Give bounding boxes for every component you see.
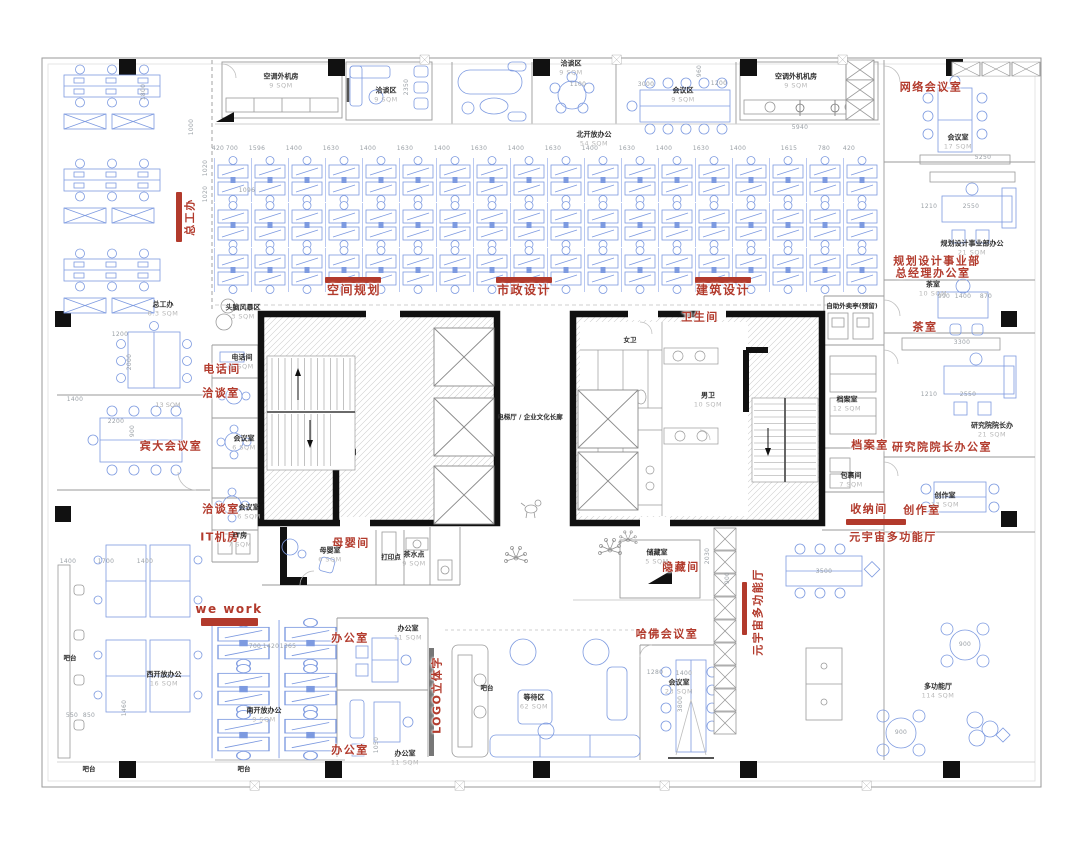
room-area: 13 SQM: [931, 500, 959, 508]
room-label: 男卫10 SQM: [694, 392, 722, 409]
dimension: 960: [697, 65, 703, 77]
room-name: 洽谈区: [561, 60, 582, 68]
room-name: 会议区: [673, 87, 694, 95]
room-label: 会议室6 SQM: [232, 435, 256, 452]
room-area: 3 SQM: [226, 312, 261, 320]
room-name: 空调外机机房: [775, 73, 817, 81]
room-label: 办公室11 SQM: [394, 625, 422, 642]
room-label: 档案室12 SQM: [833, 396, 861, 413]
dimension: 1596: [249, 146, 265, 152]
dimension: 5250: [975, 155, 991, 161]
room-name: 等待区: [524, 694, 545, 702]
annotation: 电梯厅 / 企业文化长廊: [497, 414, 562, 421]
dimension: 2550: [960, 392, 976, 398]
dimension: 1400: [286, 146, 302, 152]
zone-label: 规划设计事业部: [893, 256, 981, 267]
room-label: 头脑风暴区3 SQM: [226, 304, 261, 321]
room-area: 9 SQM: [247, 715, 282, 723]
room-label: IT房7 SQM: [228, 532, 252, 549]
dimension: 900: [895, 730, 907, 736]
room-name: 储藏室: [647, 549, 668, 557]
dimension: 1630: [471, 146, 487, 152]
room-area: 6 SQM: [232, 443, 256, 451]
dimension: 420: [843, 146, 855, 152]
dimension: 1365: [280, 644, 296, 650]
room-label: 总工办6.3 SQM: [148, 301, 179, 318]
zone-label: 元宇宙多功能厅: [849, 532, 937, 543]
dimension: 900: [959, 642, 971, 648]
room-label: 洽谈区9 SQM: [374, 87, 398, 104]
room-area: 11 SQM: [394, 633, 422, 641]
room-area: 11 SQM: [391, 758, 419, 766]
room-label: 办公室11 SQM: [391, 750, 419, 767]
room-area: 9 SQM: [671, 95, 695, 103]
room-name: 规划设计事业部办公: [941, 240, 1004, 248]
dimension: 1100: [570, 82, 586, 88]
room-label: 西开放办公16 SQM: [147, 671, 182, 688]
dimension: 1400: [656, 146, 672, 152]
dimension: 1420: [263, 644, 279, 650]
room-name: 男卫: [701, 392, 715, 400]
dimension: 1096: [239, 188, 255, 194]
zone-label: 建筑设计: [696, 284, 750, 296]
room-label: 南开放办公9 SQM: [247, 707, 282, 724]
room-area: 21 SQM: [941, 248, 1004, 256]
zone-label: 空间规划: [327, 284, 381, 296]
room-label: 多功能厅114 SQM: [922, 683, 955, 700]
dimension: 1630: [693, 146, 709, 152]
zone-label: 网络会议室: [900, 82, 963, 93]
dimension: 3000: [638, 82, 654, 88]
room-label: 研究院院长办21 SQM: [971, 422, 1013, 439]
dimension: 2030: [705, 548, 711, 564]
dimension: 1400: [360, 146, 376, 152]
room-name: 茶水点: [404, 551, 425, 559]
room-name: 空调外机房: [264, 73, 299, 81]
zone-label: 研究院院长办公室: [892, 442, 992, 453]
red-accent-bar: [176, 192, 182, 242]
annotation: 自助外卖亭(预留): [826, 303, 877, 310]
zone-label: 元宇宙多功能厅: [753, 568, 764, 656]
room-area: 21 SQM: [971, 430, 1013, 438]
label-layer: 空间规划市政设计建筑设计卫生间网络会议室规划设计事业部总经理办公室茶室档案室研究…: [0, 0, 1080, 844]
room-name: IT房: [233, 532, 247, 540]
annotation: 吧台: [64, 655, 77, 662]
dimension: 1460: [122, 700, 128, 716]
room-label: 母婴室6 SQM: [318, 547, 342, 564]
dimension: 3300: [954, 340, 970, 346]
dimension: 700: [226, 146, 238, 152]
dimension: 420: [212, 146, 224, 152]
zone-label: 宾大会议室: [140, 441, 203, 452]
room-label: 空调外机房9 SQM: [264, 73, 299, 90]
room-name: 包裹间: [841, 472, 862, 480]
dimension: 1400: [730, 146, 746, 152]
room-area: 17 SQM: [944, 142, 972, 150]
dimension: 700: [249, 644, 261, 650]
dimension: 1400: [508, 146, 524, 152]
zone-label: 洽谈室: [202, 504, 240, 515]
room-label: 电话间5 SQM: [230, 354, 254, 371]
room-label: 洽谈区9 SQM: [559, 60, 583, 77]
zone-label: 卫生间: [681, 312, 719, 323]
dimension: 1630: [323, 146, 339, 152]
room-name: 档案室: [837, 396, 858, 404]
room-name: 南开放办公: [247, 707, 282, 715]
dimension: 1630: [619, 146, 635, 152]
zone-label: 哈佛会议室: [636, 629, 699, 640]
room-area: 12 SQM: [833, 404, 861, 412]
room-area: 6.3 SQM: [148, 309, 179, 317]
dimension: 900: [725, 572, 731, 584]
room-name: 办公室: [398, 625, 419, 633]
zone-label: 洽谈室: [202, 388, 240, 399]
room-area: 23 SQM: [665, 687, 693, 695]
annotation: 女卫: [624, 337, 637, 344]
dimension: 1280: [647, 670, 663, 676]
dimension: 2200: [108, 419, 124, 425]
room-label: 创作室13 SQM: [931, 492, 959, 509]
room-label: 会议区9 SQM: [671, 87, 695, 104]
room-name: 会议室: [234, 435, 255, 443]
dimension: 2350: [404, 79, 410, 95]
zone-label: 总工办: [185, 198, 196, 236]
dimension: 1020: [203, 186, 209, 202]
dimension: 990: [938, 294, 950, 300]
room-name: 会议室: [948, 134, 969, 142]
zone-label: 收纳间: [850, 504, 888, 515]
annotation: 打印点: [381, 554, 401, 561]
dimension: 550: [66, 713, 78, 719]
dimension: 1400: [434, 146, 450, 152]
dimension: 1630: [397, 146, 413, 152]
dimension: 1020: [203, 160, 209, 176]
dimension: 1200: [112, 332, 128, 338]
zone-label: 总经理办公室: [896, 268, 971, 279]
zone-label: 办公室: [331, 745, 369, 756]
room-name: 西开放办公: [147, 671, 182, 679]
zone-label: 茶室: [913, 322, 938, 333]
room-label: 会议室6 SQM: [237, 504, 261, 521]
annotation: 吧台: [481, 685, 494, 692]
red-accent-bar: [846, 519, 906, 525]
floor-plan-canvas: 空间规划市政设计建筑设计卫生间网络会议室规划设计事业部总经理办公室茶室档案室研究…: [0, 0, 1080, 844]
zone-label: we work: [195, 603, 262, 615]
room-area: 9 SQM: [264, 81, 299, 89]
room-area: 6 SQM: [237, 512, 261, 520]
zone-label: 办公室: [331, 633, 369, 644]
room-area: 9 SQM: [775, 81, 817, 89]
dimension: 1400: [137, 559, 153, 565]
dimension: 3500: [816, 569, 832, 575]
room-label: 包裹间7 SQM: [839, 472, 863, 489]
room-area: 7 SQM: [228, 540, 252, 548]
zone-label: 市政设计: [497, 284, 551, 296]
dimension: 850: [83, 713, 95, 719]
zone-label: LOGO立体字: [432, 656, 443, 734]
room-name: 电话间: [232, 354, 253, 362]
red-accent-bar: [201, 618, 258, 626]
dimension: 1400: [60, 559, 76, 565]
dimension: 2000: [127, 354, 133, 370]
room-name: 茶室: [926, 281, 940, 289]
red-accent-bar: [742, 582, 747, 635]
dimension: 1200: [711, 81, 727, 87]
room-name: 母婴室: [320, 547, 341, 555]
room-name: 总工办: [152, 301, 173, 309]
room-label: 空调外机机房9 SQM: [775, 73, 817, 90]
room-name: 会议室: [239, 504, 260, 512]
annotation: 13 SQM: [155, 402, 180, 409]
room-area: 16 SQM: [147, 679, 182, 687]
dimension: 5940: [792, 125, 808, 131]
dimension: 2550: [963, 204, 979, 210]
room-area: 5 SQM: [230, 362, 254, 370]
dimension: 3800: [678, 696, 684, 712]
dimension: 900: [130, 425, 136, 437]
annotation: 吧台: [83, 766, 96, 773]
dimension: 1800: [141, 84, 147, 100]
dimension: 1400: [582, 146, 598, 152]
room-name: 创作室: [935, 492, 956, 500]
dimension: 1400: [676, 671, 692, 677]
zone-label: 档案室: [851, 440, 889, 451]
room-label: 规划设计事业部办公21 SQM: [941, 240, 1004, 257]
room-name: 北开放办公: [577, 131, 612, 139]
room-area: 114 SQM: [922, 691, 955, 699]
room-name: 洽谈区: [376, 87, 397, 95]
room-area: 10 SQM: [694, 400, 722, 408]
dimension: 1210: [921, 392, 937, 398]
dimension: 1210: [921, 204, 937, 210]
room-label: 储藏室5 SQM: [645, 549, 669, 566]
dimension: 870: [980, 294, 992, 300]
room-area: 9 SQM: [402, 559, 426, 567]
room-area: 62 SQM: [520, 702, 548, 710]
dimension: 1400: [955, 294, 971, 300]
dimension: 1630: [545, 146, 561, 152]
room-area: 9 SQM: [374, 95, 398, 103]
dimension: 780: [818, 146, 830, 152]
room-area: 6 SQM: [318, 555, 342, 563]
room-area: 9 SQM: [559, 68, 583, 76]
room-label: 会议室17 SQM: [944, 134, 972, 151]
dimension: 1700: [98, 559, 114, 565]
dimension: 1000: [189, 119, 195, 135]
annotation: 吧台: [238, 766, 251, 773]
dimension: 1615: [781, 146, 797, 152]
dimension: 1400: [67, 397, 83, 403]
room-name: 研究院院长办: [971, 422, 1013, 430]
room-name: 多功能厅: [924, 683, 952, 691]
room-label: 等待区62 SQM: [520, 694, 548, 711]
dimension: 1050: [374, 737, 380, 753]
room-area: 5 SQM: [645, 557, 669, 565]
room-label: 会议室23 SQM: [665, 679, 693, 696]
room-label: 茶水点9 SQM: [402, 551, 426, 568]
room-name: 办公室: [395, 750, 416, 758]
room-area: 7 SQM: [839, 480, 863, 488]
room-name: 头脑风暴区: [226, 304, 261, 312]
room-name: 会议室: [669, 679, 690, 687]
